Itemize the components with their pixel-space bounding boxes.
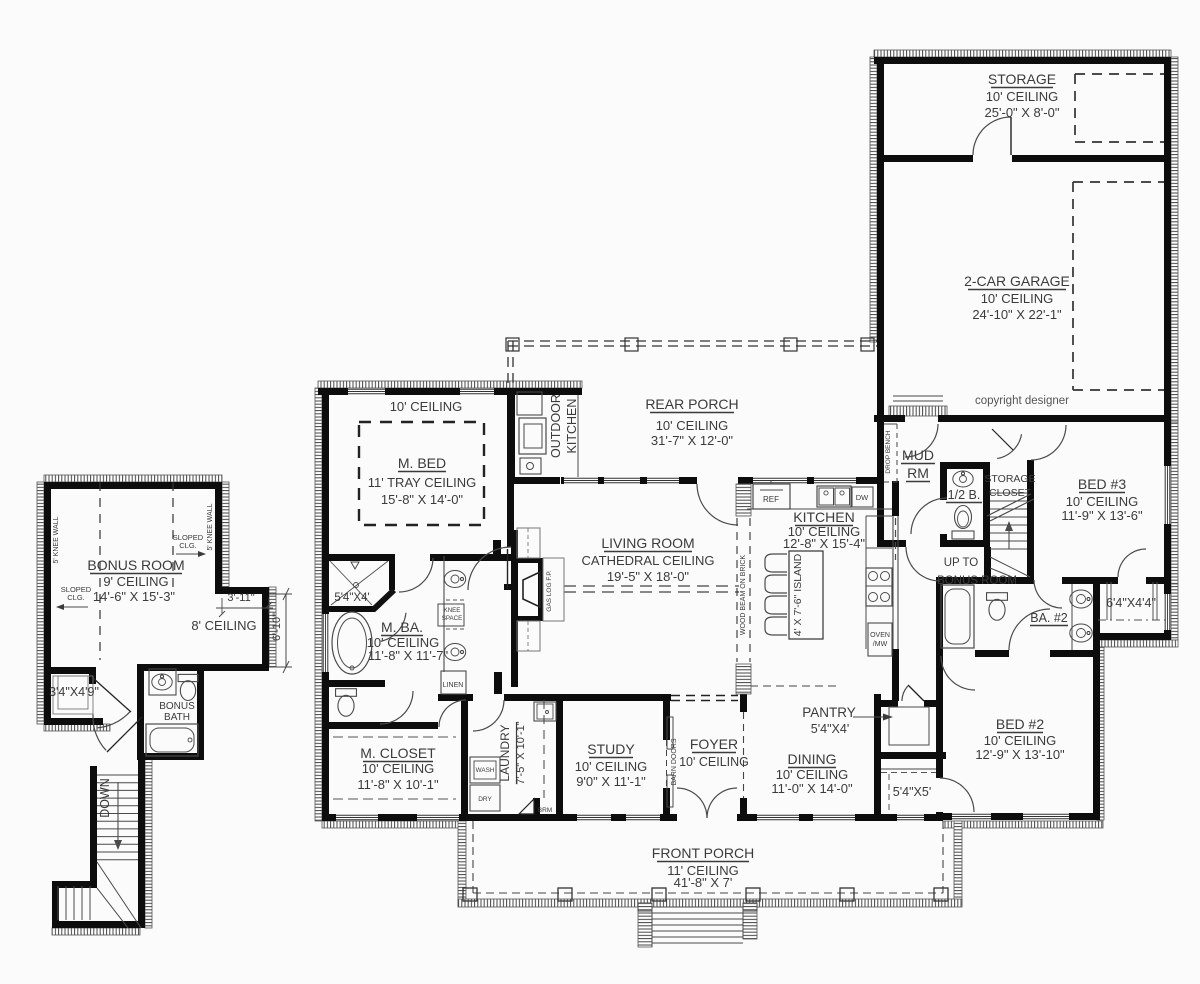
svg-text:LINEN: LINEN [443, 682, 464, 689]
svg-text:WASH: WASH [476, 767, 495, 774]
svg-text:7'-5" X 10'-1": 7'-5" X 10'-1" [515, 721, 527, 784]
svg-text:10' CEILING: 10' CEILING [981, 291, 1054, 306]
svg-text:REAR PORCH: REAR PORCH [645, 396, 738, 412]
svg-text:6'-10": 6'-10" [271, 613, 283, 641]
svg-text:10' CEILING: 10' CEILING [776, 767, 849, 782]
svg-text:3'-11": 3'-11" [227, 592, 254, 604]
svg-text:DRY: DRY [478, 796, 492, 803]
svg-text:10' CEILING: 10' CEILING [679, 755, 749, 769]
svg-text:6'4"X4'4": 6'4"X4'4" [1106, 596, 1156, 610]
svg-text:KNEE: KNEE [444, 607, 461, 614]
svg-text:copyright designer: copyright designer [975, 395, 1069, 407]
svg-text:BARN DOORS: BARN DOORS [671, 738, 678, 785]
svg-text:CLOSET: CLOSET [989, 487, 1032, 499]
svg-text:BED #3: BED #3 [1078, 476, 1126, 492]
svg-text:BED #2: BED #2 [996, 716, 1044, 732]
svg-text:5'4"X4': 5'4"X4' [811, 722, 849, 736]
svg-text:5'4"X5': 5'4"X5' [893, 785, 931, 799]
svg-text:41'-8" X 7': 41'-8" X 7' [674, 875, 733, 890]
svg-text:REF: REF [763, 495, 779, 504]
svg-text:31'-7" X 12'-0": 31'-7" X 12'-0" [651, 433, 734, 448]
svg-text:KITCHEN: KITCHEN [793, 509, 854, 525]
svg-text:14'-6" X 15'-3": 14'-6" X 15'-3" [93, 589, 176, 604]
svg-text:11'-9" X 13'-6": 11'-9" X 13'-6" [1061, 508, 1143, 523]
svg-text:24'-10" X 22'-1": 24'-10" X 22'-1" [972, 307, 1062, 322]
svg-text:M. BA.: M. BA. [381, 619, 423, 635]
svg-text:GAS LOG F.P.: GAS LOG F.P. [546, 570, 553, 612]
svg-text:STORAGE: STORAGE [988, 71, 1056, 87]
svg-text:19'-5" X 18'-0": 19'-5" X 18'-0" [607, 569, 690, 584]
svg-text:BONUS ROOM: BONUS ROOM [87, 557, 184, 573]
svg-text:CLG.: CLG. [67, 593, 85, 602]
svg-text:11'-8" X 11'-7": 11'-8" X 11'-7" [368, 648, 449, 663]
svg-text:MUD: MUD [902, 447, 934, 463]
svg-text:OUTDOOR: OUTDOOR [549, 394, 563, 458]
svg-text:FRONT PORCH: FRONT PORCH [652, 845, 754, 861]
svg-text:/MW: /MW [873, 641, 888, 648]
svg-text:WOOD BEAM ON BRICK: WOOD BEAM ON BRICK [740, 555, 747, 635]
svg-text:BONUS: BONUS [159, 701, 195, 712]
svg-text:11' TRAY CEILING: 11' TRAY CEILING [368, 475, 476, 490]
svg-text:10' CEILING: 10' CEILING [390, 399, 463, 414]
svg-text:25'-0" X 8'-0": 25'-0" X 8'-0" [985, 105, 1060, 120]
svg-text:LAUNDRY: LAUNDRY [498, 724, 512, 781]
svg-text:RM: RM [907, 465, 929, 481]
svg-text:STORAGE: STORAGE [984, 473, 1035, 485]
svg-text:BONUS ROOM: BONUS ROOM [937, 575, 1017, 587]
svg-text:CATHEDRAL CEILING: CATHEDRAL CEILING [582, 553, 715, 568]
svg-text:11'-8" X 10'-1": 11'-8" X 10'-1" [357, 777, 439, 792]
svg-text:9' CEILING: 9' CEILING [103, 574, 168, 589]
svg-text:DW: DW [856, 493, 869, 502]
svg-text:10' CEILING: 10' CEILING [575, 759, 648, 774]
svg-text:DOWN: DOWN [98, 778, 112, 818]
svg-text:PANTRY: PANTRY [802, 705, 856, 720]
svg-text:11'-0" X 14'-0": 11'-0" X 14'-0" [771, 781, 853, 796]
svg-text:10' CEILING: 10' CEILING [986, 89, 1059, 104]
svg-text:12'-9" X 13'-10": 12'-9" X 13'-10" [975, 747, 1065, 762]
svg-text:10' CEILING: 10' CEILING [1066, 494, 1139, 509]
svg-text:LIVING ROOM: LIVING ROOM [601, 535, 694, 551]
svg-text:5'4"X4': 5'4"X4' [334, 592, 369, 604]
svg-text:12'-8" X 15'-4": 12'-8" X 15'-4" [783, 536, 866, 551]
svg-text:15'-8" X 14'-0": 15'-8" X 14'-0" [381, 492, 464, 507]
svg-text:BA. #2: BA. #2 [1030, 611, 1068, 625]
svg-text:STUDY: STUDY [587, 741, 635, 757]
svg-text:KITCHEN: KITCHEN [565, 399, 579, 454]
svg-text:SPACE: SPACE [442, 615, 463, 622]
svg-text:BRM: BRM [538, 807, 552, 814]
svg-text:DROP BENCH: DROP BENCH [885, 430, 892, 474]
svg-text:10' CEILING: 10' CEILING [362, 761, 435, 776]
svg-text:10' CEILING: 10' CEILING [656, 418, 729, 433]
svg-text:BATH: BATH [164, 712, 190, 723]
svg-text:4' X 7'-6" ISLAND: 4' X 7'-6" ISLAND [792, 553, 804, 636]
svg-text:FOYER: FOYER [690, 736, 738, 752]
svg-text:1/2 B.: 1/2 B. [948, 488, 981, 502]
svg-text:DINING: DINING [788, 751, 837, 767]
svg-text:5' KNEE WALL: 5' KNEE WALL [207, 503, 214, 550]
svg-text:M. CLOSET: M. CLOSET [360, 745, 436, 761]
svg-text:CLG.: CLG. [179, 541, 197, 550]
svg-text:5' KNEE WALL: 5' KNEE WALL [53, 516, 60, 563]
svg-text:3'4"X4'9": 3'4"X4'9" [49, 685, 99, 699]
svg-text:UP TO: UP TO [944, 557, 979, 569]
svg-text:OVEN: OVEN [870, 632, 890, 639]
svg-text:M. BED: M. BED [398, 455, 446, 471]
svg-text:2-CAR GARAGE: 2-CAR GARAGE [964, 273, 1070, 289]
svg-text:9'0" X 11'-1": 9'0" X 11'-1" [576, 774, 646, 789]
svg-text:10' CEILING: 10' CEILING [984, 733, 1057, 748]
svg-text:8' CEILING: 8' CEILING [191, 618, 256, 633]
